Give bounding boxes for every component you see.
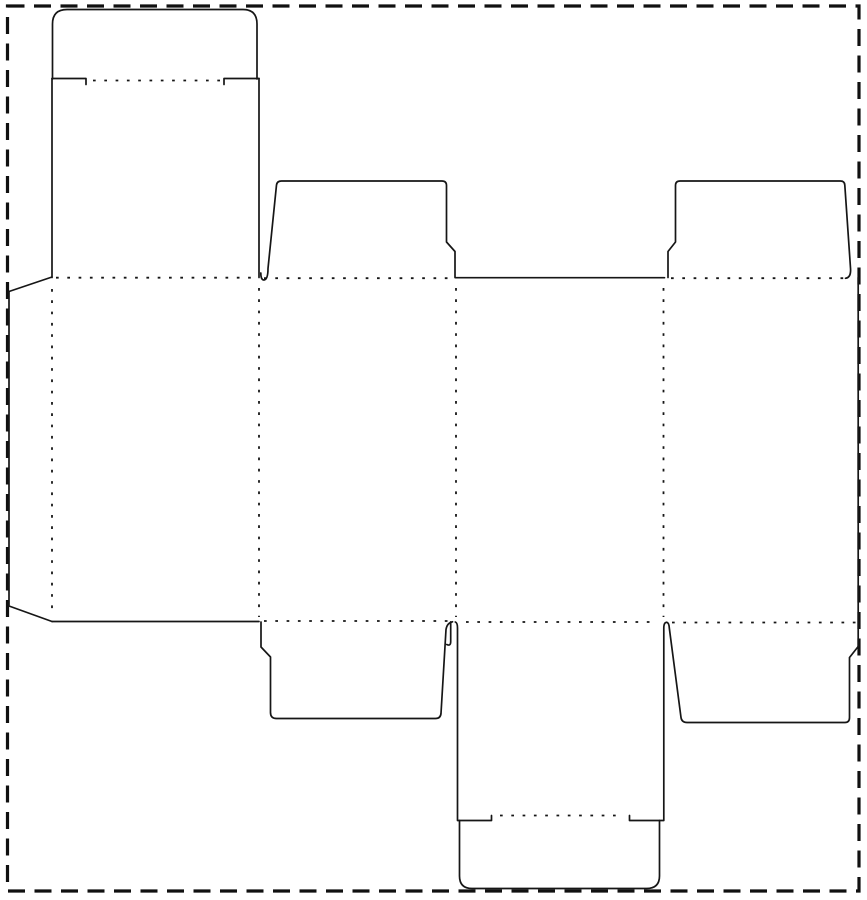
bottom-cover-right-edge xyxy=(630,622,667,820)
top-tuck-flap-outline xyxy=(53,10,258,80)
top-dust-flap-left-outline xyxy=(261,181,455,280)
cut-lines-group xyxy=(9,10,858,889)
dieline-svg xyxy=(0,0,867,900)
bottom-cover-left-edge xyxy=(455,622,491,821)
top-tuck-shoulder-right xyxy=(224,79,259,85)
dieline-page xyxy=(0,0,867,900)
top-dust-flap-right-outline xyxy=(668,181,851,278)
bottom-dust-flap-left-outline xyxy=(261,622,453,719)
fold-lines-group xyxy=(52,81,856,816)
top-tuck-shoulder-left xyxy=(52,79,86,85)
page-border xyxy=(8,6,860,891)
glue-flap-outline xyxy=(9,277,52,622)
page-border-group xyxy=(8,6,860,891)
bottom-dust-flap-right-outline xyxy=(667,622,858,722)
bottom-tuck-flap-outline xyxy=(460,821,660,889)
